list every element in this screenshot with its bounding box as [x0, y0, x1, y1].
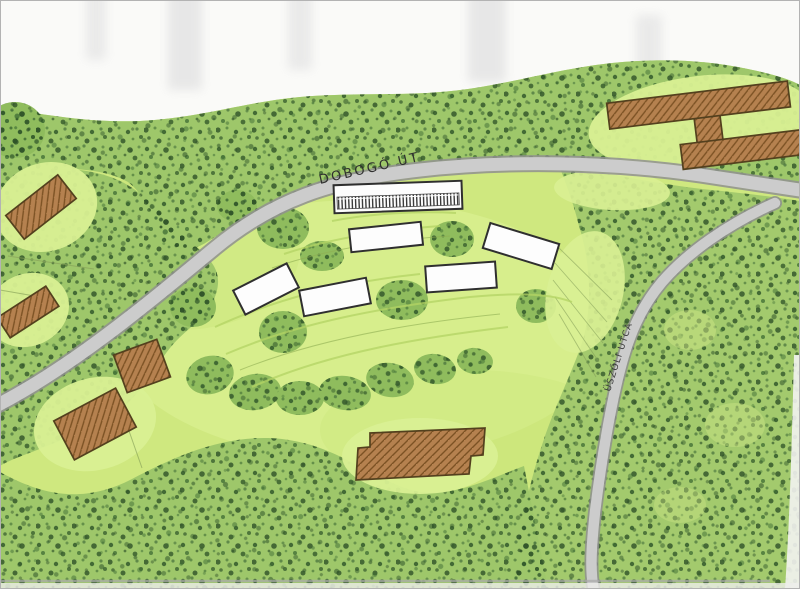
- existing-building: [356, 428, 485, 480]
- proposed-building-terraced: [334, 181, 463, 213]
- proposed-building: [425, 262, 497, 293]
- site-plan-map: DOBOGÓ ÚT ÜSZŐLI UTCA: [0, 0, 800, 589]
- site-plan-page: DOBOGÓ ÚT ÜSZŐLI UTCA: [0, 0, 800, 589]
